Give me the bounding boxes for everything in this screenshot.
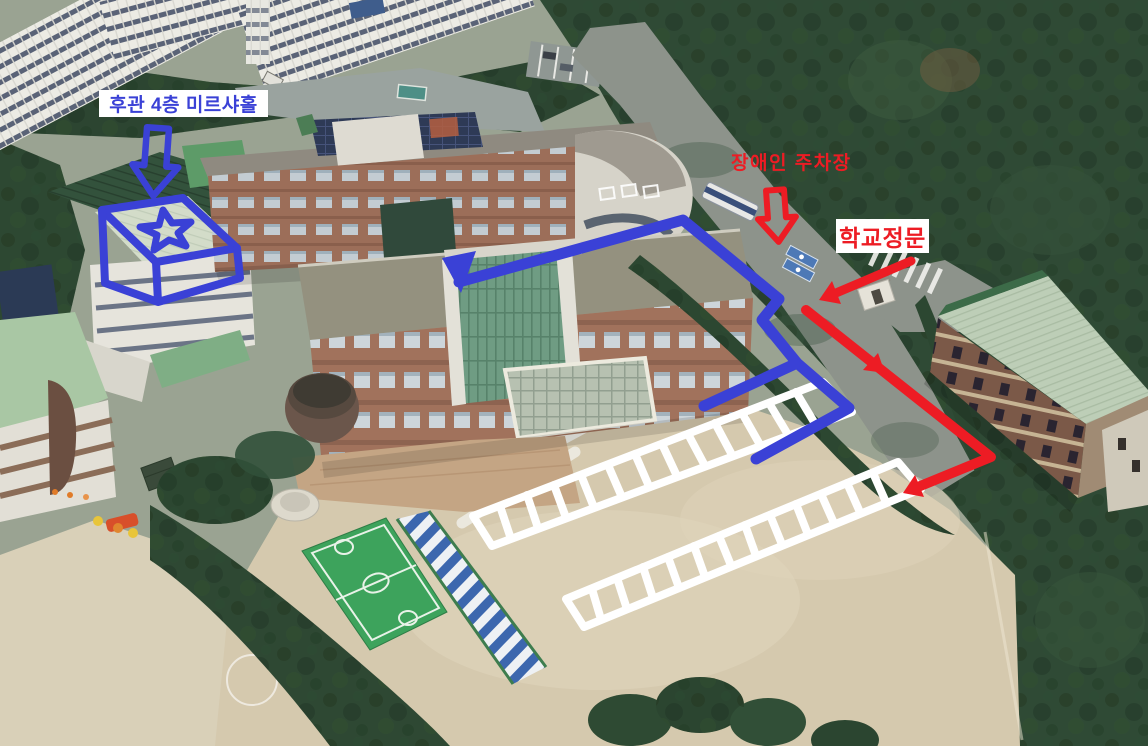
- upper-parking-row: [473, 382, 852, 546]
- hall-label: 후관 4층 미르샤홀: [99, 90, 268, 117]
- annotated-aerial-map: 후관 4층 미르샤홀 장애인 주차장 학교정문: [0, 0, 1148, 746]
- red-route: [806, 310, 991, 497]
- disabled-parking-label: 장애인 주차장: [731, 148, 852, 175]
- disabled-parking-down-arrow-icon: [756, 189, 798, 244]
- gate-arrow: [819, 261, 911, 304]
- school-gate-label: 학교정문: [836, 219, 929, 253]
- destination-roof-box: [102, 198, 240, 302]
- hall-down-arrow-icon: [130, 126, 181, 197]
- star-icon: [140, 210, 191, 250]
- blue-route-arrowhead: [442, 251, 476, 293]
- blue-route: [442, 220, 849, 459]
